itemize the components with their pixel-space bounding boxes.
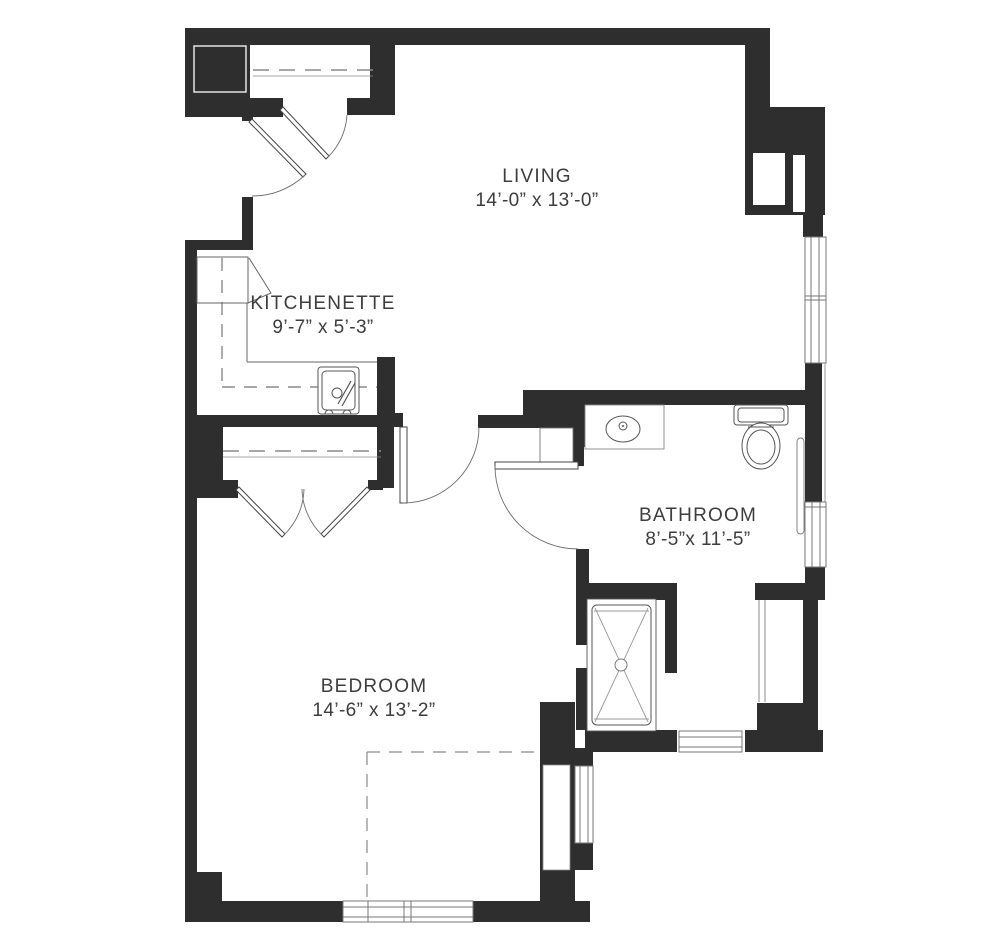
window-bedroom-east bbox=[575, 766, 593, 843]
wall bbox=[583, 390, 808, 405]
wall bbox=[585, 730, 677, 752]
wall bbox=[575, 748, 593, 766]
room-labels: LIVING 14’-0” x 13’-0” KITCHENETTE 9’-7”… bbox=[250, 166, 757, 721]
bathroom-door-arc bbox=[495, 466, 578, 549]
wall bbox=[573, 428, 584, 466]
wall bbox=[377, 357, 395, 415]
wall bbox=[575, 843, 593, 870]
niche bbox=[753, 153, 785, 205]
shower-pan-icon bbox=[587, 599, 656, 731]
bedroom-door-arc bbox=[403, 427, 479, 503]
wall bbox=[242, 197, 253, 240]
wall bbox=[745, 730, 823, 752]
window-shower-south bbox=[679, 731, 742, 752]
bathroom-fixtures bbox=[585, 405, 804, 731]
wall bbox=[803, 212, 823, 237]
wall bbox=[347, 98, 395, 115]
closet-door-left-leaf bbox=[236, 487, 285, 537]
wall bbox=[380, 413, 403, 427]
wall bbox=[757, 703, 818, 730]
room-label-bathroom: BATHROOM bbox=[639, 505, 757, 526]
wall bbox=[370, 45, 395, 98]
wall bbox=[583, 583, 672, 600]
wall bbox=[377, 427, 394, 488]
bedroom-door-leaf bbox=[400, 427, 407, 503]
entry-door-arc bbox=[252, 175, 305, 196]
toilet-icon bbox=[734, 405, 788, 469]
room-label-living: LIVING bbox=[502, 166, 572, 187]
vanity-sink-icon bbox=[585, 405, 664, 449]
closet-door-left-arc bbox=[284, 489, 304, 535]
walls bbox=[185, 28, 825, 922]
wall bbox=[185, 250, 197, 875]
wall bbox=[197, 427, 223, 490]
wall bbox=[523, 390, 577, 428]
wall bbox=[185, 240, 253, 250]
room-label-kitchenette: KITCHENETTE bbox=[250, 293, 395, 314]
niche bbox=[793, 155, 805, 212]
wall bbox=[805, 567, 825, 600]
niche bbox=[543, 765, 570, 870]
room-dims-bedroom: 14’-6” x 13’-2” bbox=[312, 700, 435, 721]
wall bbox=[185, 872, 222, 905]
bathroom-door-leaf bbox=[495, 462, 578, 469]
wall bbox=[185, 415, 394, 427]
grab-bar bbox=[797, 438, 804, 534]
floor-plan-canvas: LIVING 14’-0” x 13’-0” KITCHENETTE 9’-7”… bbox=[0, 0, 1000, 949]
wall bbox=[185, 28, 250, 100]
wall bbox=[185, 901, 343, 922]
window-bathroom-east bbox=[805, 502, 826, 567]
room-dims-living: 14’-0” x 13’-0” bbox=[475, 190, 598, 211]
wall bbox=[745, 45, 770, 107]
wall bbox=[478, 415, 523, 428]
kitchen-sink-icon bbox=[318, 367, 359, 414]
floor-plan-drawing: LIVING 14’-0” x 13’-0” KITCHENETTE 9’-7”… bbox=[0, 0, 1000, 949]
room-dims-bathroom: 8’-5”x 11’-5” bbox=[645, 529, 750, 550]
room-dims-kitchenette: 9’-7” x 5’-3” bbox=[272, 317, 373, 338]
room-label-bedroom: BEDROOM bbox=[321, 676, 428, 697]
window-bedroom-south bbox=[343, 901, 473, 922]
wall bbox=[185, 28, 770, 45]
wall-cabinet bbox=[540, 428, 573, 465]
wall bbox=[223, 480, 238, 490]
closet-door-right-arc bbox=[302, 489, 322, 535]
coat-closet-door-arc bbox=[328, 115, 347, 157]
wall bbox=[803, 600, 818, 703]
wall bbox=[185, 98, 283, 117]
closet-door-right-leaf bbox=[321, 487, 370, 537]
coat-closet-door-leaf bbox=[280, 107, 329, 159]
wall bbox=[805, 363, 822, 502]
